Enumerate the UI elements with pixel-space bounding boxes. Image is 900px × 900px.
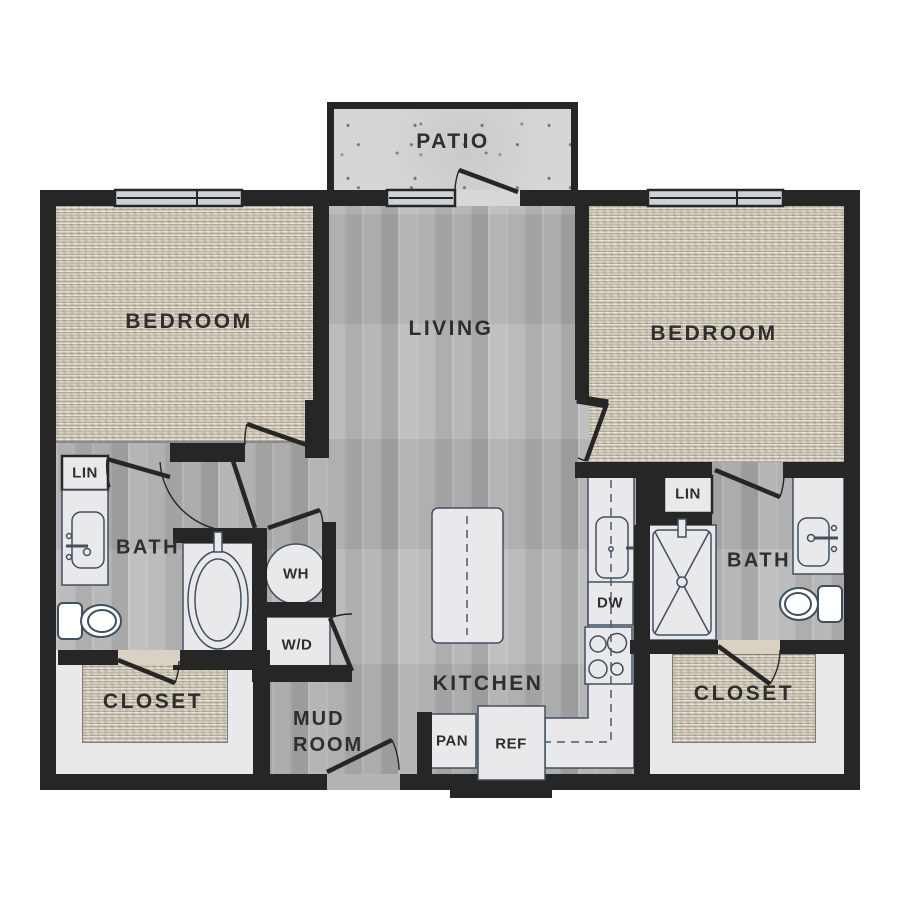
wall-linR-bottom (664, 513, 712, 525)
room-label-bedroom-left: BEDROOM (125, 310, 252, 334)
label-washer-dryer: W/D (282, 637, 313, 654)
label-linen-left: LIN (72, 465, 98, 482)
toilet-right-seat (785, 593, 811, 615)
faucet-left-knob (67, 555, 72, 560)
wall-pan-left (417, 712, 432, 775)
bathtub-spout (214, 532, 222, 552)
room-label-kitchen: KITCHEN (433, 672, 544, 696)
floor-plan: PATIO BEDROOM LIVING BEDROOM LIN BATH WH… (0, 0, 900, 900)
toilet-right-tank (818, 586, 842, 622)
wall-closetL-top-left (58, 650, 118, 665)
label-water-heater: WH (283, 566, 309, 583)
faucet-right-handle (808, 535, 815, 542)
room-label-bath-left: BATH (116, 537, 180, 560)
label-pantry: PAN (436, 733, 468, 750)
entry-door-opening (327, 774, 400, 790)
sink-left (72, 512, 104, 568)
wall-wh-wd-divider (252, 602, 336, 617)
sink-right (798, 518, 829, 566)
faucet-left-knob (67, 534, 72, 539)
faucet-left-handle (84, 549, 91, 556)
bedroom-left-door (247, 424, 307, 445)
wall-closetR-top-left (630, 640, 718, 654)
room-label-bath-right: BATH (727, 550, 791, 573)
water-heater-door (268, 510, 320, 528)
patio-door (459, 170, 518, 192)
windows (115, 190, 783, 206)
wall-bedL-corner (305, 400, 329, 458)
wall-right (844, 190, 860, 790)
shower-drain (677, 577, 687, 587)
wall-closetL-top-right (180, 650, 253, 665)
room-label-bedroom-right: BEDROOM (650, 322, 777, 346)
wall-bedR-angled (577, 399, 608, 404)
patio-door-opening (455, 190, 520, 206)
bedroom-right-door (586, 403, 607, 461)
wall-left (40, 190, 56, 790)
washer-dryer-door (330, 618, 352, 671)
bathtub (188, 551, 248, 649)
room-label-living: LIVING (408, 317, 493, 341)
wall-living-right (575, 206, 589, 400)
wall-linR-block (636, 462, 664, 525)
bath-right-door (715, 470, 780, 497)
toilet-left-seat (88, 610, 116, 632)
room-label-mud-room: MUD ROOM (293, 706, 363, 758)
wall-bedR-bottom-right (783, 462, 844, 478)
room-label-closet-right: CLOSET (694, 682, 794, 706)
label-dishwasher: DW (597, 595, 623, 612)
room-label-closet-left: CLOSET (103, 690, 203, 714)
wall-closetL-divider (253, 650, 270, 775)
shower-head (678, 519, 686, 537)
bath-left-door (232, 458, 255, 528)
faucet-right-knob (832, 526, 837, 531)
toilet-left-tank (58, 603, 82, 639)
label-refrigerator: REF (495, 736, 527, 753)
faucet-right-knob (832, 547, 837, 552)
label-linen-right: LIN (675, 486, 701, 503)
wall-closetR-top-right (780, 640, 844, 654)
room-label-patio: PATIO (416, 130, 490, 154)
